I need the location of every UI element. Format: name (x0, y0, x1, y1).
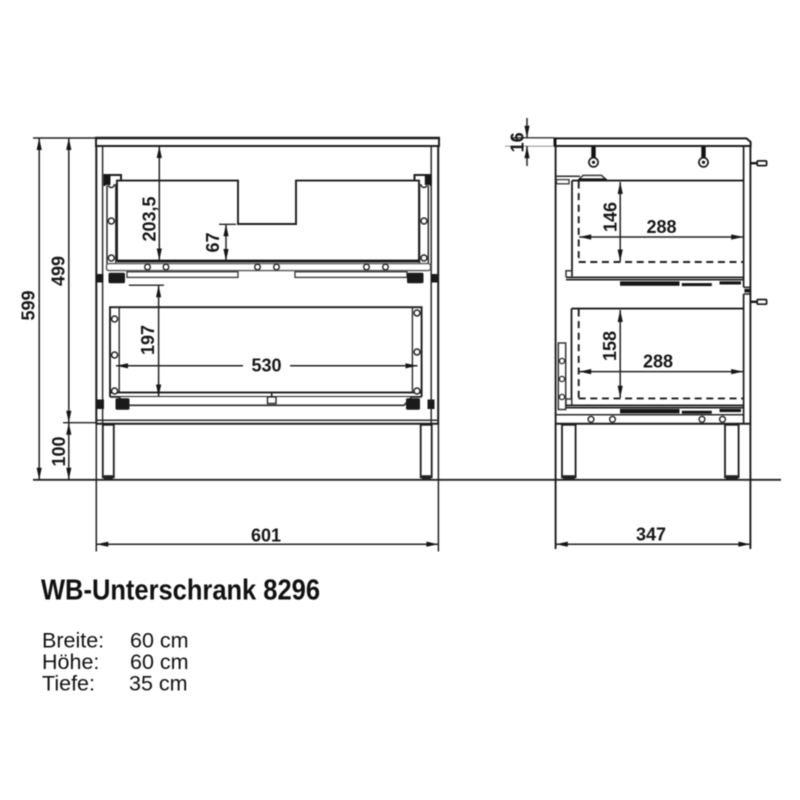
svg-text:203,5: 203,5 (139, 196, 159, 241)
svg-text:146: 146 (601, 202, 621, 232)
svg-text:347: 347 (636, 525, 666, 545)
svg-text:601: 601 (251, 526, 281, 546)
svg-text:60 cm: 60 cm (130, 629, 189, 653)
svg-text:60 cm: 60 cm (130, 650, 189, 674)
svg-text:100: 100 (49, 436, 69, 466)
svg-text:Breite:: Breite: (42, 629, 104, 653)
svg-text:288: 288 (646, 217, 676, 237)
svg-text:530: 530 (251, 356, 281, 376)
svg-text:288: 288 (643, 351, 673, 371)
svg-text:158: 158 (600, 331, 620, 361)
svg-text:67: 67 (203, 232, 223, 252)
svg-text:Höhe:: Höhe: (42, 650, 99, 674)
svg-text:16: 16 (507, 132, 527, 152)
svg-text:599: 599 (18, 290, 38, 320)
svg-text:197: 197 (138, 325, 158, 355)
svg-text:35 cm: 35 cm (129, 672, 188, 696)
svg-text:Tiefe:: Tiefe: (42, 672, 95, 696)
svg-text:499: 499 (48, 256, 68, 286)
svg-text:WB-Unterschrank 8296: WB-Unterschrank 8296 (41, 575, 320, 607)
